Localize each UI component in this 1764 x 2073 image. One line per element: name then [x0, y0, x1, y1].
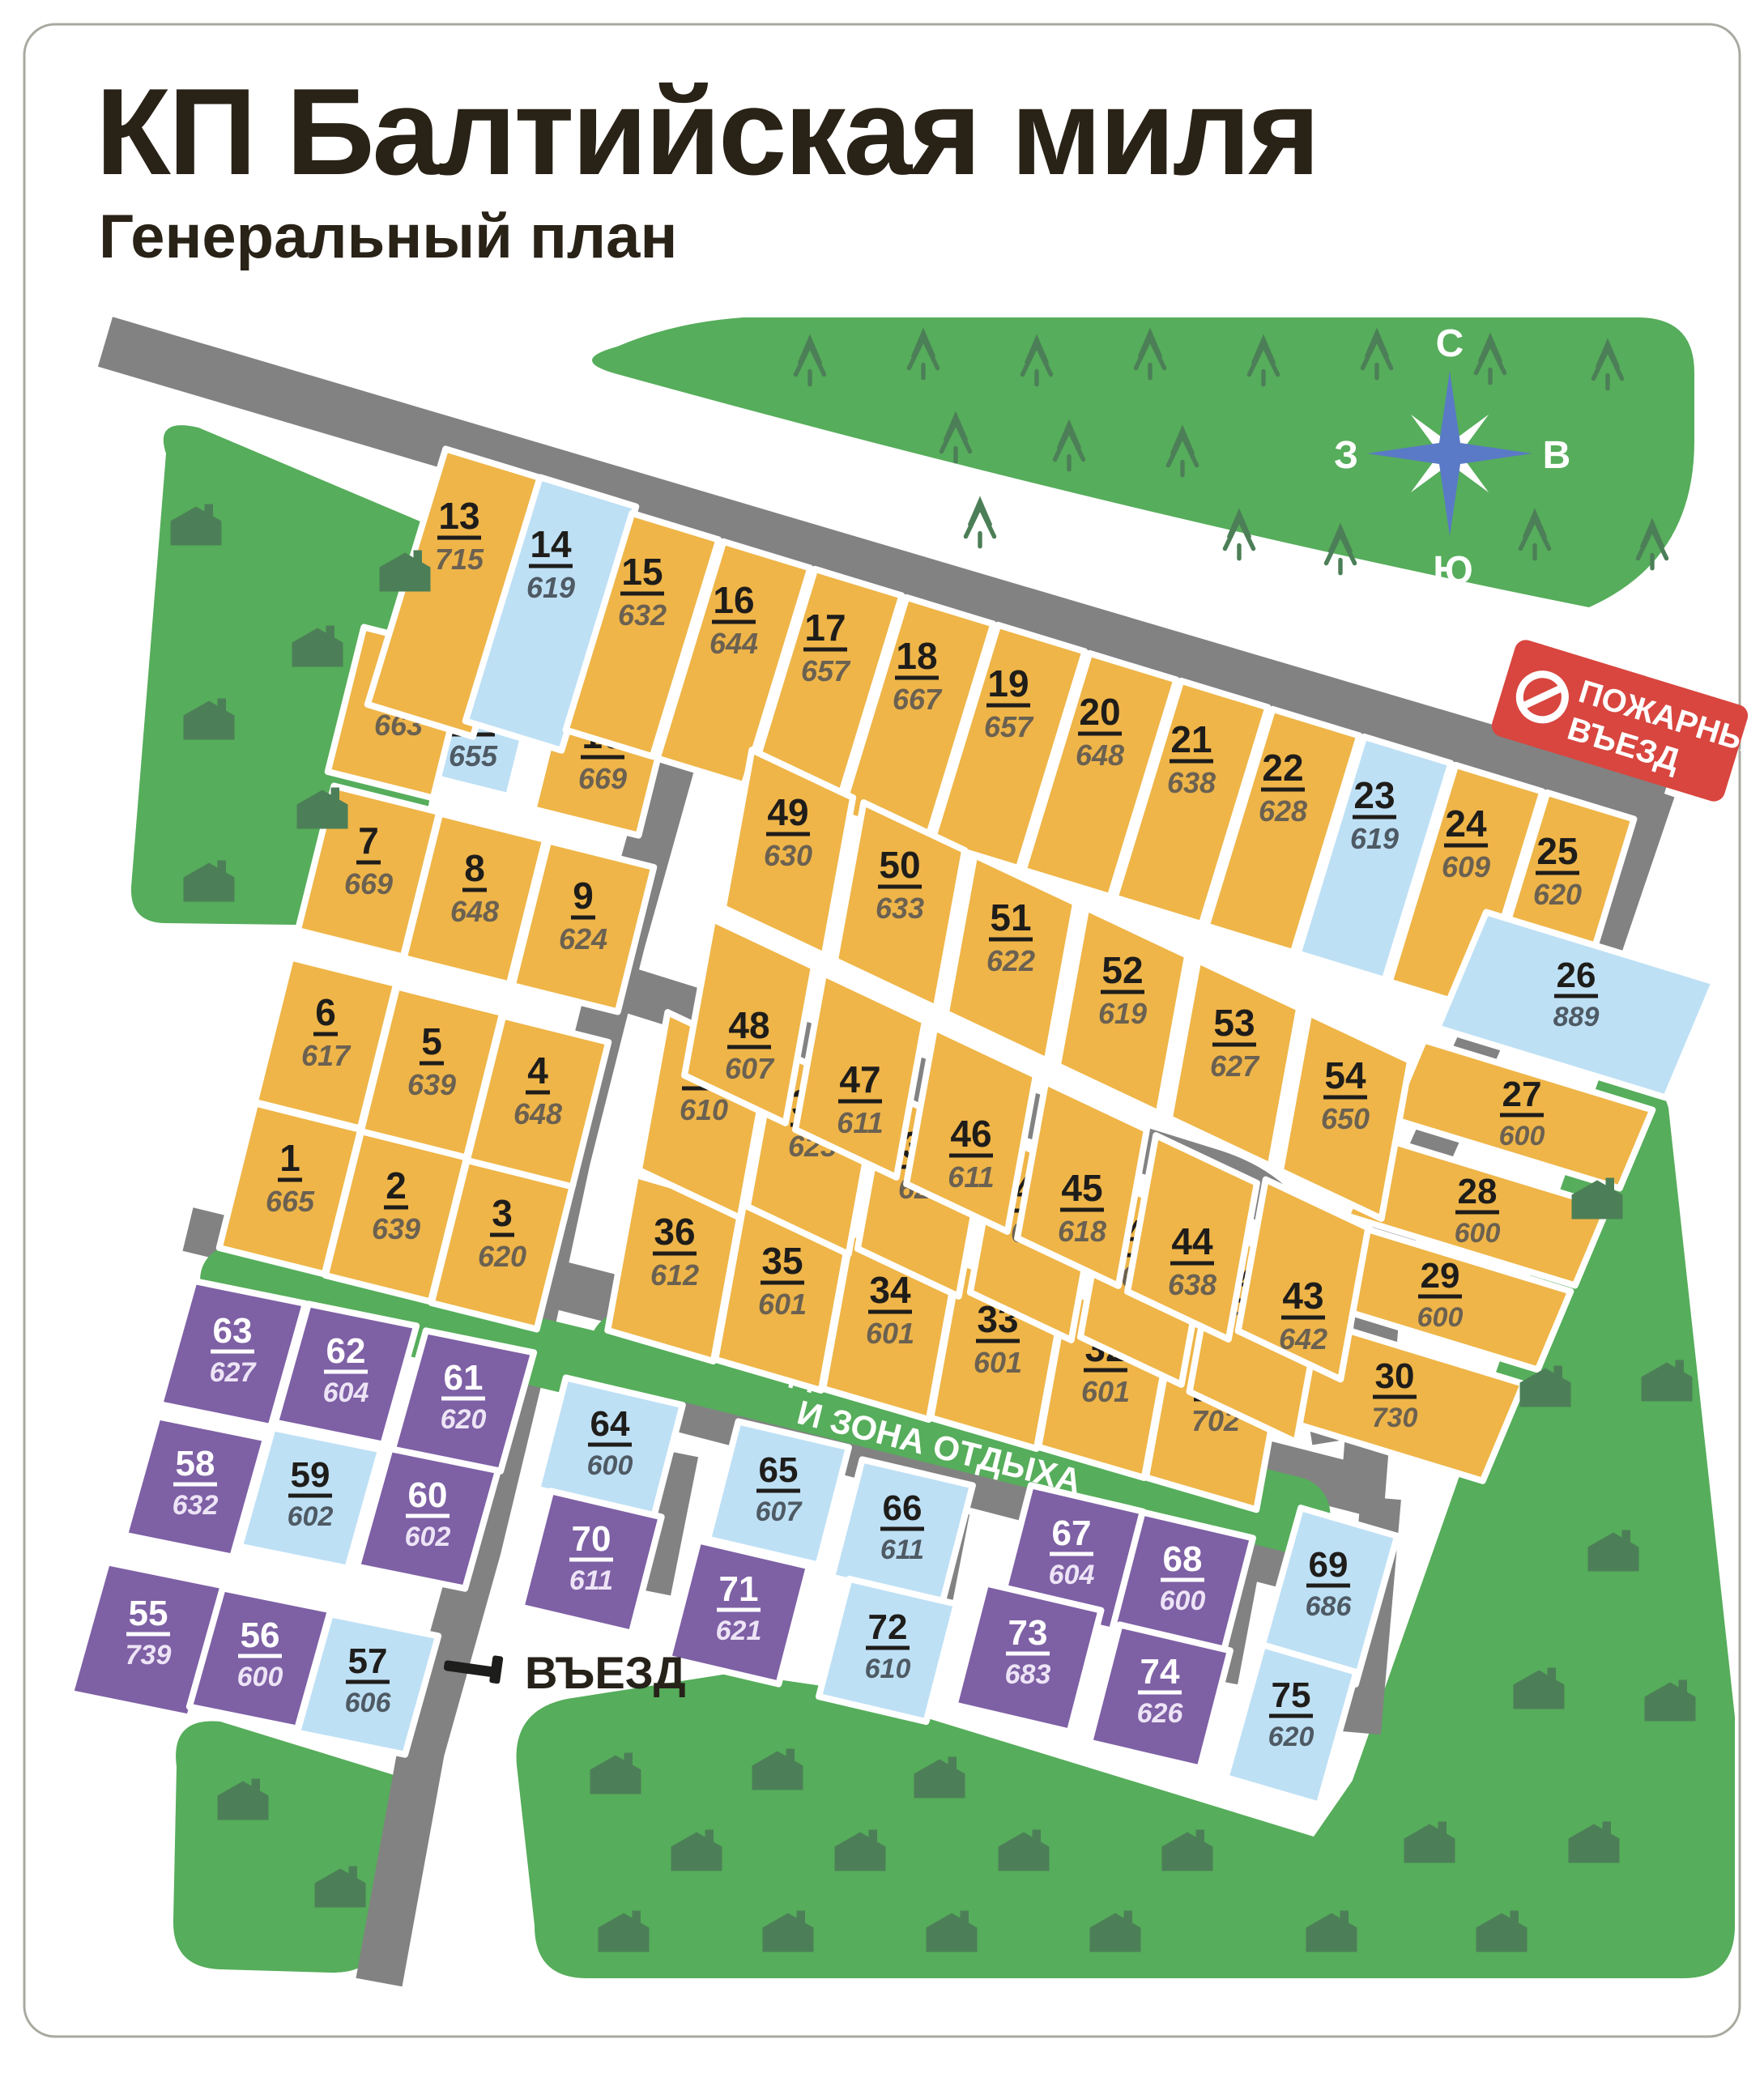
lot-number: 47: [839, 1058, 880, 1100]
lot-area: 642: [1279, 1322, 1327, 1356]
lot-area: 607: [725, 1052, 775, 1085]
lot-area: 620: [441, 1404, 487, 1435]
lot-area: 644: [709, 627, 758, 660]
lot-area: 739: [126, 1640, 172, 1671]
lot-area: 648: [513, 1097, 562, 1130]
lot-number: 72: [868, 1607, 908, 1647]
lot-number: 51: [990, 896, 1031, 939]
lot-number: 46: [950, 1113, 991, 1155]
lot-area: 655: [449, 739, 498, 773]
lot-shape[interactable]: [819, 1579, 957, 1722]
lot-area: 619: [1350, 822, 1399, 855]
lot-number: 69: [1309, 1545, 1349, 1585]
lot-area: 715: [435, 543, 484, 576]
lot-number: 15: [621, 551, 663, 593]
lot-number: 54: [1324, 1054, 1366, 1096]
lot-area: 604: [323, 1377, 369, 1408]
lot-area: 620: [478, 1240, 526, 1273]
lot-number: 44: [1171, 1220, 1213, 1262]
lot-number: 48: [728, 1004, 769, 1046]
lot-area: 611: [569, 1565, 613, 1596]
lot-area: 889: [1553, 1002, 1600, 1032]
lot-area: 626: [1137, 1698, 1184, 1729]
compass-east-label: В: [1543, 434, 1571, 477]
lot-number: 74: [1140, 1652, 1180, 1692]
lot-number: 34: [869, 1269, 911, 1311]
lot-area: 667: [893, 683, 943, 716]
lot-74[interactable]: 74626: [1089, 1624, 1230, 1768]
lot-number: 5: [421, 1020, 442, 1062]
lot-number: 2: [386, 1164, 407, 1207]
lot-area: 609: [1442, 850, 1490, 883]
lot-area: 638: [1168, 1268, 1216, 1301]
lot-number: 21: [1170, 718, 1212, 760]
lot-number: 67: [1052, 1513, 1092, 1553]
lot-area: 650: [1321, 1102, 1370, 1135]
page-title: КП Балтийская миля: [96, 63, 1318, 201]
lot-area: 648: [450, 895, 499, 928]
lot-area: 601: [974, 1346, 1022, 1379]
lot-number: 8: [464, 847, 485, 889]
lot-area: 602: [288, 1501, 334, 1532]
lot-area: 600: [587, 1450, 633, 1481]
lot-area: 683: [1005, 1659, 1051, 1690]
compass-west-label: З: [1334, 434, 1358, 477]
lot-51[interactable]: 51622: [946, 855, 1076, 1061]
lot-number: 70: [572, 1519, 611, 1559]
lot-number: 29: [1421, 1256, 1460, 1296]
lot-area: 669: [344, 867, 393, 900]
lot-70[interactable]: 70611: [521, 1491, 661, 1632]
lot-area: 611: [948, 1160, 994, 1194]
lot-number: 62: [326, 1331, 366, 1371]
lot-number: 58: [176, 1444, 215, 1483]
lot-area: 602: [405, 1522, 451, 1552]
lot-number: 7: [358, 819, 379, 862]
lot-area: 610: [865, 1654, 911, 1684]
lot-area: 633: [876, 892, 924, 925]
lot-area: 632: [618, 598, 667, 632]
lot-area: 618: [1058, 1215, 1106, 1248]
lot-number: 27: [1502, 1075, 1542, 1114]
lot-number: 13: [438, 495, 479, 537]
lot-area: 617: [301, 1039, 352, 1072]
lot-area: 611: [837, 1106, 883, 1139]
lot-number: 26: [1557, 956, 1596, 995]
lot-area: 639: [407, 1068, 456, 1101]
lot-number: 36: [654, 1211, 695, 1253]
lot-area: 686: [1306, 1591, 1353, 1622]
lot-number: 23: [1353, 774, 1395, 816]
plan-canvas: КП Балтийская миля Генеральный план: [0, 0, 1764, 2073]
lot-number: 61: [444, 1358, 484, 1398]
lot-area: 657: [984, 710, 1034, 743]
page-subtitle: Генеральный план: [99, 202, 677, 271]
lot-number: 63: [213, 1311, 253, 1351]
lot-number: 45: [1061, 1167, 1102, 1209]
lot-area: 600: [1455, 1218, 1501, 1249]
lot-number: 16: [713, 579, 754, 621]
lot-number: 22: [1262, 747, 1303, 789]
lot-area: 611: [880, 1535, 924, 1565]
lot-number: 71: [719, 1569, 759, 1609]
lot-number: 17: [804, 607, 846, 649]
fir-tree-icon: [965, 501, 994, 546]
lot-area: 622: [986, 944, 1035, 977]
lot-shape[interactable]: [521, 1491, 661, 1632]
lot-number: 9: [573, 875, 594, 917]
lot-number: 35: [761, 1240, 803, 1282]
lot-area: 669: [578, 762, 627, 795]
lot-number: 28: [1458, 1172, 1498, 1211]
lot-area: 612: [650, 1258, 699, 1292]
lot-area: 601: [866, 1317, 914, 1350]
lot-area: 600: [237, 1662, 283, 1692]
lot-area: 665: [266, 1185, 315, 1218]
lot-area: 606: [345, 1688, 392, 1718]
lot-area: 657: [801, 654, 851, 687]
lot-number: 64: [590, 1404, 630, 1444]
lot-number: 3: [492, 1192, 513, 1234]
lot-number: 25: [1536, 830, 1578, 872]
lot-area: 628: [1259, 794, 1307, 828]
lot-area: 630: [764, 839, 812, 872]
lot-73[interactable]: 73683: [955, 1583, 1101, 1731]
lot-number: 66: [883, 1488, 922, 1528]
lot-number: 14: [530, 523, 572, 565]
lot-number: 53: [1213, 1002, 1255, 1044]
lot-number: 73: [1008, 1613, 1048, 1653]
lot-area: 607: [756, 1496, 803, 1527]
lot-number: 24: [1445, 802, 1487, 845]
lot-area: 730: [1372, 1403, 1418, 1433]
lot-area: 632: [173, 1490, 219, 1521]
lot-shape[interactable]: [668, 1540, 809, 1684]
lot-number: 55: [129, 1594, 168, 1633]
lot-number: 1: [279, 1137, 300, 1179]
lot-number: 60: [408, 1475, 448, 1515]
lot-75[interactable]: 75620: [1225, 1645, 1356, 1804]
lot-number: 30: [1375, 1356, 1415, 1396]
lot-area: 638: [1167, 766, 1216, 799]
lot-52[interactable]: 52619: [1058, 908, 1187, 1113]
master-plan-page: КП Балтийская миля Генеральный план: [0, 0, 1764, 2073]
lot-area: 627: [1210, 1049, 1260, 1083]
entrance: ВЪЕЗД: [442, 1647, 685, 1698]
lot-number: 49: [767, 791, 808, 833]
lot-area: 600: [1160, 1586, 1206, 1616]
lot-area: 627: [210, 1357, 258, 1388]
lot-number: 56: [241, 1615, 280, 1655]
lot-area: 624: [559, 922, 607, 956]
lot-number: 52: [1101, 949, 1143, 991]
lot-number: 6: [315, 991, 336, 1033]
lot-number: 75: [1272, 1675, 1311, 1715]
lot-area: 620: [1268, 1722, 1314, 1752]
lot-area: 601: [1081, 1375, 1130, 1408]
lot-number: 68: [1163, 1539, 1203, 1579]
lot-number: 59: [291, 1455, 330, 1495]
lot-53[interactable]: 53627: [1170, 960, 1299, 1166]
lot-area: 619: [526, 571, 575, 604]
lot-number: 20: [1079, 691, 1120, 733]
lot-area: 610: [680, 1093, 728, 1126]
lot-shape[interactable]: [955, 1583, 1101, 1731]
lot-area: 600: [1417, 1302, 1464, 1333]
lot-area: 601: [758, 1288, 807, 1321]
compass-south-label: Ю: [1433, 549, 1473, 592]
lot-number: 43: [1282, 1275, 1323, 1317]
entrance-label: ВЪЕЗД: [525, 1647, 686, 1698]
lot-number: 50: [879, 844, 920, 886]
lot-area: 648: [1076, 739, 1124, 772]
lot-72[interactable]: 72610: [819, 1579, 957, 1722]
lot-number: 65: [759, 1450, 799, 1490]
lot-area: 639: [372, 1212, 420, 1245]
lot-number: 4: [527, 1049, 548, 1092]
lot-number: 19: [987, 662, 1029, 704]
compass-north-label: С: [1436, 322, 1464, 365]
lot-number: 57: [348, 1641, 388, 1681]
lot-area: 619: [1098, 997, 1147, 1030]
lot-number: 18: [896, 635, 937, 677]
lot-71[interactable]: 71621: [668, 1540, 809, 1684]
lot-shape[interactable]: [1089, 1624, 1230, 1768]
lot-area: 600: [1499, 1121, 1545, 1151]
lot-area: 604: [1049, 1560, 1095, 1590]
lot-area: 620: [1533, 878, 1582, 911]
lot-area: 621: [716, 1615, 762, 1646]
